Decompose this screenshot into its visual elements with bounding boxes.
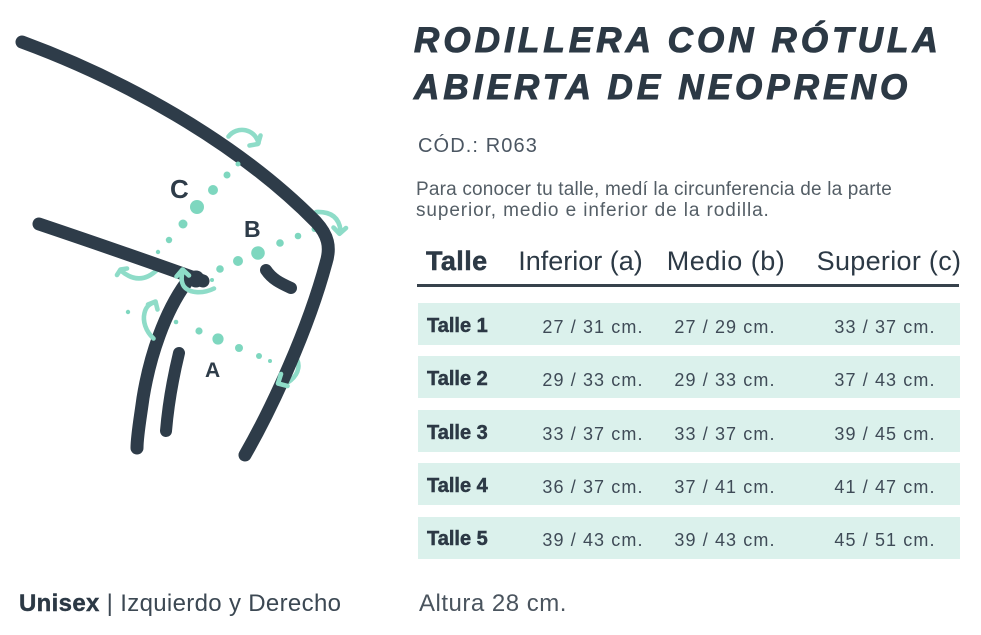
svg-text:A: A xyxy=(205,359,220,382)
svg-text:B: B xyxy=(244,216,261,242)
svg-text:C: C xyxy=(170,174,189,204)
